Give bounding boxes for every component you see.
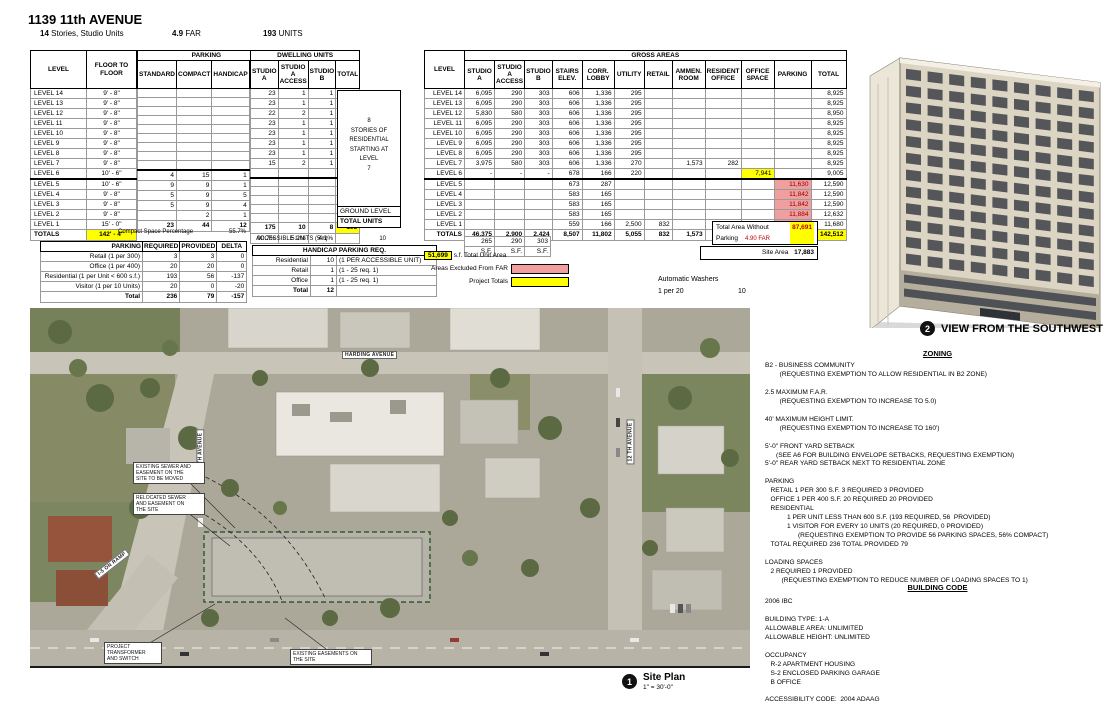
table-cell: 9 (177, 180, 212, 190)
table-cell (705, 139, 741, 149)
table-cell: LEVEL 5 (425, 179, 465, 190)
table-cell (705, 200, 741, 210)
table-cell: 23 (251, 129, 279, 139)
table-cell: 1 (278, 149, 308, 159)
table-cell (465, 210, 495, 220)
table-cell: 8,925 (811, 89, 846, 99)
table-cell (705, 89, 741, 99)
legend-excluded-swatch (511, 264, 569, 274)
table-cell: -157 (217, 292, 247, 303)
table-cell: 12 (311, 286, 337, 297)
table-cell: 9' - 8" (87, 89, 137, 99)
unit-area-label: s.f. Total Unit Area (454, 252, 507, 259)
table-cell: 1 (308, 119, 336, 129)
table-cell: LEVEL 4 (425, 190, 465, 200)
washers-ratio: 1 per 20 (658, 288, 684, 295)
table-cell (672, 220, 705, 230)
table-cell: LEVEL 13 (425, 99, 465, 109)
page-title: 1139 11th AVENUE (28, 12, 142, 27)
table-cell: 1 (311, 276, 337, 286)
gross-col-utility: UTILITY (614, 61, 644, 89)
table-cell (177, 134, 212, 143)
table-cell: 559 (552, 220, 582, 230)
table-cell (177, 152, 212, 161)
table-cell (672, 210, 705, 220)
gross-col-resident-office: RESIDENT OFFICE (705, 61, 741, 89)
table-cell: 9 (177, 190, 212, 200)
table-cell: 606 (552, 129, 582, 139)
table-cell (308, 196, 336, 205)
table-cell: 606 (552, 139, 582, 149)
table-cell (212, 152, 249, 161)
table-cell (212, 116, 249, 125)
table-cell: 1,336 (582, 109, 614, 119)
gross-table-title: GROSS AREAS (465, 51, 847, 61)
building-code-title: BUILDING CODE (765, 583, 1110, 592)
table-cell: 2 (177, 210, 212, 220)
header-units: 193 UNITS (263, 29, 303, 38)
legend-totals-label: Project Totals (360, 276, 508, 288)
total-unit-area-row: 51,699 s.f. Total Unit Area (424, 252, 506, 259)
table-cell: 6,095 (465, 149, 495, 159)
table-cell (705, 169, 741, 180)
table-cell: 1 (311, 266, 337, 276)
table-cell: LEVEL 14 (31, 89, 87, 99)
far-label: FAR (185, 29, 201, 38)
table-cell (644, 169, 672, 180)
table-cell: 23 (251, 119, 279, 129)
table-cell: 9' - 8" (87, 159, 137, 169)
table-cell: LEVEL 7 (425, 159, 465, 169)
unit-area-value: 51,699 (424, 251, 452, 260)
table-cell: 165 (582, 210, 614, 220)
table-cell: 9,005 (811, 169, 846, 180)
table-cell: Residential (253, 256, 311, 266)
table-cell (212, 89, 249, 98)
table-cell: 606 (552, 119, 582, 129)
table-cell: 303 (525, 109, 553, 119)
table-cell (774, 109, 811, 119)
table-cell: 220 (614, 169, 644, 180)
table-cell: 6,095 (465, 99, 495, 109)
table-cell (644, 159, 672, 169)
table-cell: 1 (308, 109, 336, 119)
gross-col-studio-a-access: STUDIO A ACCESS (495, 61, 525, 89)
col-dwelling-total: TOTAL (336, 61, 360, 89)
table-cell (644, 119, 672, 129)
table-cell: 673 (552, 179, 582, 190)
table-cell (774, 119, 811, 129)
callout-1-icon: 1 (622, 674, 637, 689)
col-studio-b: STUDIO B (308, 61, 336, 89)
table-cell: 583 (552, 200, 582, 210)
levels-table: LEVEL FLOOR TO FLOOR LEVEL 149' - 8"LEVE… (30, 50, 137, 241)
table-cell: 3,975 (465, 159, 495, 169)
col-delta: DELTA (217, 242, 247, 252)
table-cell (278, 187, 308, 196)
table-cell (644, 200, 672, 210)
table-cell (465, 190, 495, 200)
table-cell (774, 89, 811, 99)
table-cell: 295 (614, 149, 644, 159)
table-cell: 287 (582, 179, 614, 190)
table-cell: 8,950 (811, 109, 846, 119)
table-cell: - (465, 169, 495, 180)
table-cell: 236 (143, 292, 180, 303)
table-cell: 0 (180, 282, 217, 292)
table-cell: 282 (705, 159, 741, 169)
table-cell (251, 196, 279, 205)
legend-excluded-label: Areas Excluded From FAR (360, 263, 508, 275)
table-cell: 11,842 (774, 200, 811, 210)
table-cell: 5,830 (465, 109, 495, 119)
table-cell (644, 89, 672, 99)
table-cell (138, 125, 177, 134)
table-cell (614, 190, 644, 200)
far-value: 4.9 (172, 29, 183, 38)
table-cell: 4 (212, 200, 249, 210)
accessible-units-value: 10 (379, 236, 386, 242)
table-cell: 583 (552, 190, 582, 200)
gross-areas-table: LEVEL GROSS AREAS STUDIO A STUDIO A ACCE… (424, 50, 847, 241)
table-cell (525, 190, 553, 200)
table-cell: 23 (251, 99, 279, 109)
table-cell: 166 (582, 220, 614, 230)
table-cell: 1 (278, 139, 308, 149)
table-cell: 5,055 (614, 230, 644, 241)
table-cell (212, 98, 249, 107)
table-cell: LEVEL 14 (425, 89, 465, 99)
table-cell: 1 (308, 139, 336, 149)
table-cell: LEVEL 12 (425, 109, 465, 119)
table-cell: LEVEL 8 (425, 149, 465, 159)
table-cell: LEVEL 1 (31, 220, 87, 230)
table-cell: LEVEL 2 (425, 210, 465, 220)
table-cell: 9' - 8" (87, 149, 137, 159)
table-cell: 20 (143, 282, 180, 292)
table-cell: 606 (552, 159, 582, 169)
table-cell (278, 205, 308, 214)
col-handicap: HANDICAP (212, 61, 249, 89)
table-cell: 12,590 (811, 179, 846, 190)
table-cell: LEVEL 6 (31, 169, 87, 180)
floor-col-header: FLOOR TO FLOOR (87, 51, 137, 89)
table-cell: 9' - 8" (87, 109, 137, 119)
table-cell: 10' - 6" (87, 179, 137, 190)
table-cell: -20 (217, 282, 247, 292)
annotation-easements: EXISTING EASEMENTS ON THE SITE (290, 649, 372, 665)
table-cell: 1,336 (582, 129, 614, 139)
table-cell (251, 214, 279, 223)
table-cell (705, 129, 741, 139)
table-cell: 8,925 (811, 129, 846, 139)
callout-2-icon: 2 (920, 321, 935, 336)
table-cell: 1,336 (582, 139, 614, 149)
table-cell: LEVEL 12 (31, 109, 87, 119)
table-cell (644, 149, 672, 159)
table-cell: 295 (614, 139, 644, 149)
table-cell (495, 220, 525, 230)
table-cell: 1 (308, 99, 336, 109)
table-cell: 15 (177, 170, 212, 181)
table-cell: 11,842 (774, 190, 811, 200)
table-cell: 1,336 (582, 89, 614, 99)
table-cell: Total (253, 286, 311, 297)
table-cell: LEVEL 6 (425, 169, 465, 180)
table-cell: Visitor (1 per 10 Units) (41, 282, 143, 292)
ground-level-label: GROUND LEVEL (337, 207, 401, 217)
table-cell: 2,500 (614, 220, 644, 230)
table-cell (741, 210, 774, 220)
table-cell (177, 89, 212, 98)
table-cell: 193 (143, 272, 180, 282)
table-cell (138, 116, 177, 125)
table-cell (644, 179, 672, 190)
col-parking: PARKING (41, 242, 143, 252)
table-cell (138, 161, 177, 170)
table-cell (251, 169, 279, 178)
table-cell: 303 (525, 99, 553, 109)
table-cell: 1 (278, 99, 308, 109)
table-cell: 1 (308, 149, 336, 159)
table-cell: LEVEL 4 (31, 190, 87, 200)
table-cell (741, 139, 774, 149)
header-far: 4.9 FAR (172, 29, 201, 38)
table-cell (672, 119, 705, 129)
table-cell: 2 (278, 109, 308, 119)
table-cell (177, 143, 212, 152)
table-cell: LEVEL 11 (31, 119, 87, 129)
washers-label: Automatic Washers (658, 276, 718, 283)
col-required: REQUIRED (143, 242, 180, 252)
table-cell: LEVEL 3 (425, 200, 465, 210)
table-cell (644, 190, 672, 200)
table-cell (741, 179, 774, 190)
header-stories: 14 Stories, Studio Units (40, 29, 124, 38)
table-cell: 3 (180, 252, 217, 262)
table-cell (774, 129, 811, 139)
gross-col-retail: RETAIL (644, 61, 672, 89)
table-cell (644, 109, 672, 119)
table-cell: 290 (495, 119, 525, 129)
table-cell: 295 (614, 129, 644, 139)
table-cell: 8,925 (811, 159, 846, 169)
table-cell: 3 (143, 252, 180, 262)
table-cell: 23 (251, 89, 279, 99)
table-cell: LEVEL 7 (31, 159, 87, 169)
street-label-12th: 12 TH AVENUE (626, 420, 634, 465)
dwelling-table-title: DWELLING UNITS (251, 51, 360, 61)
table-cell: 10' - 6" (87, 169, 137, 180)
table-cell (251, 178, 279, 187)
table-cell (212, 161, 249, 170)
table-cell (741, 89, 774, 99)
table-cell (774, 159, 811, 169)
table-cell (774, 169, 811, 180)
annotation-relocated-sewer: RELOCATED SEWER AND EASEMENT ON THE SITE (133, 493, 205, 515)
table-cell: 290 (495, 99, 525, 109)
table-cell: 56 (180, 272, 217, 282)
gross-col-parking: PARKING (774, 61, 811, 89)
gross-col-ammen-room: AMMEN. ROOM (672, 61, 705, 89)
aerial-graphic (30, 308, 750, 666)
table-cell (672, 89, 705, 99)
table-cell: Office (253, 276, 311, 286)
table-cell: TOTALS (425, 230, 465, 241)
table-cell (465, 179, 495, 190)
table-cell: 295 (614, 109, 644, 119)
table-cell: 9' - 8" (87, 129, 137, 139)
table-cell: 0 (217, 252, 247, 262)
table-cell: 165 (582, 190, 614, 200)
table-cell: LEVEL 10 (31, 129, 87, 139)
table-cell: 6,095 (465, 139, 495, 149)
table-cell (138, 152, 177, 161)
table-cell (495, 190, 525, 200)
table-cell: LEVEL 10 (425, 129, 465, 139)
table-cell: TOTALS (31, 230, 87, 241)
gross-col-stairs: STAIRS ELEV. (552, 61, 582, 89)
table-cell: 1 (278, 89, 308, 99)
table-cell: 290 (495, 89, 525, 99)
site-plan-caption: Site Plan (643, 672, 685, 683)
gross-col-corr-lobby: CORR. LOBBY (582, 61, 614, 89)
table-cell (465, 220, 495, 230)
table-cell: 6,095 (465, 119, 495, 129)
table-cell (525, 210, 553, 220)
table-cell (525, 200, 553, 210)
table-cell: 165 (582, 200, 614, 210)
handicap-table-title: HANDICAP PARKING REQ. (253, 246, 437, 256)
table-cell: 303 (525, 237, 551, 247)
table-cell: 20 (180, 262, 217, 272)
table-cell (705, 119, 741, 129)
table-cell (614, 179, 644, 190)
table-cell (465, 200, 495, 210)
col-provided: PROVIDED (180, 242, 217, 252)
table-cell (138, 143, 177, 152)
table-cell: 1 (212, 210, 249, 220)
table-cell (278, 169, 308, 178)
col-standard: STANDARD (138, 61, 177, 89)
table-cell (177, 125, 212, 134)
table-cell (741, 149, 774, 159)
table-cell (672, 200, 705, 210)
table-cell: Total (41, 292, 143, 303)
table-cell (525, 220, 553, 230)
table-cell (138, 98, 177, 107)
col-compact: COMPACT (177, 61, 212, 89)
table-cell: 832 (644, 220, 672, 230)
total-units-label: TOTAL UNITS (337, 217, 401, 228)
col-studio-a-access: STUDIO A ACCESS (278, 61, 308, 89)
table-cell: 5 (212, 190, 249, 200)
table-cell: 606 (552, 149, 582, 159)
table-cell (774, 139, 811, 149)
table-cell: 7,941 (741, 169, 774, 180)
total-area-value: 87,691 (790, 222, 814, 244)
table-cell (308, 187, 336, 196)
table-cell: 1,573 (672, 159, 705, 169)
table-cell: 9' - 8" (87, 139, 137, 149)
table-cell: 4 (138, 170, 177, 181)
table-cell (251, 187, 279, 196)
table-cell: 11,802 (582, 230, 614, 241)
gross-col-total: TOTAL (811, 61, 846, 89)
table-cell: 1 (212, 180, 249, 190)
table-cell: 295 (614, 119, 644, 129)
table-cell: 0 (217, 262, 247, 272)
table-cell: 265 (465, 237, 495, 247)
accessible-units-row: ACCESSIBLE UNITS (5%) 10 (256, 236, 386, 242)
table-cell (495, 210, 525, 220)
table-cell: 1 (308, 159, 336, 169)
table-cell (705, 179, 741, 190)
table-cell: 1,336 (582, 149, 614, 159)
table-cell (672, 129, 705, 139)
table-cell: 303 (525, 129, 553, 139)
table-cell (672, 190, 705, 200)
building-render (858, 44, 1112, 328)
table-cell: 1 (308, 89, 336, 99)
table-cell (177, 161, 212, 170)
residential-note: 8 STORIES OF RESIDENTIAL STARTING AT LEV… (337, 90, 401, 207)
table-cell (672, 109, 705, 119)
table-cell (177, 107, 212, 116)
table-cell: 1 (308, 129, 336, 139)
table-cell (495, 200, 525, 210)
site-plan-aerial: HARDING AVENUE 11 TH AVENUE 12 TH AVENUE… (30, 308, 750, 668)
table-cell: 9' - 8" (87, 119, 137, 129)
zoning-body: B2 - BUSINESS COMMUNITY (REQUESTING EXEM… (765, 362, 1113, 586)
compact-percentage-value: 55.7% (229, 229, 246, 235)
table-cell: LEVEL 1 (425, 220, 465, 230)
table-cell: 23 (251, 149, 279, 159)
table-cell: 9' - 8" (87, 190, 137, 200)
table-cell (614, 210, 644, 220)
table-cell: 15 (251, 159, 279, 169)
table-cell: 5 (138, 190, 177, 200)
table-cell: S.F. (525, 247, 551, 257)
table-cell: 23 (251, 139, 279, 149)
table-cell: 10 (311, 256, 337, 266)
table-cell: 290 (495, 139, 525, 149)
gross-col-office-space: OFFICE SPACE (741, 61, 774, 89)
annotation-existing-sewer: EXISTING SEWER AND EASEMENT ON THE SITE … (133, 462, 205, 484)
table-cell: 303 (525, 159, 553, 169)
table-cell (705, 190, 741, 200)
table-cell (278, 214, 308, 223)
table-cell: Retail (253, 266, 311, 276)
table-cell (741, 119, 774, 129)
table-cell (308, 169, 336, 178)
table-cell: LEVEL 8 (31, 149, 87, 159)
table-cell: 1 (278, 119, 308, 129)
table-cell: 1 (278, 129, 308, 139)
table-cell: LEVEL 5 (31, 179, 87, 190)
stories-label: Stories, Studio Units (51, 29, 123, 38)
table-cell (705, 99, 741, 109)
table-cell (672, 169, 705, 180)
units-label: UNITS (279, 29, 303, 38)
gross-col-studio-a: STUDIO A (465, 61, 495, 89)
table-cell: 9 (177, 200, 212, 210)
table-cell: 1,336 (582, 159, 614, 169)
table-cell (308, 214, 336, 223)
table-cell: 6,095 (465, 89, 495, 99)
table-cell: 20 (143, 262, 180, 272)
table-cell: - (525, 169, 553, 180)
